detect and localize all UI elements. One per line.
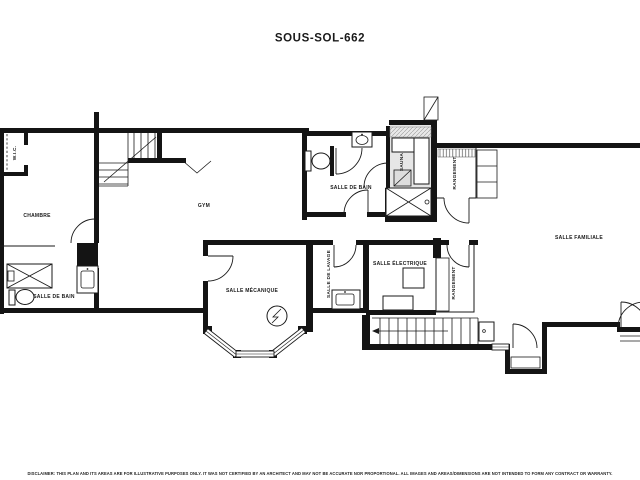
sink-symbol — [352, 132, 372, 147]
floor-plan-page: SOUS-SOL-662 — [0, 0, 640, 480]
disclaimer-text: DISCLAIMER: THIS PLAN AND ITS AREAS ARE … — [28, 471, 613, 476]
room-label-laundry: SALLE DE LAVAGE — [326, 249, 332, 298]
equipment-box — [403, 268, 424, 288]
cabinet-symbol — [479, 322, 494, 341]
equipment-box-2 — [383, 296, 413, 310]
laundry-sink-symbol — [332, 290, 360, 309]
room-label-gym: GYM — [198, 203, 210, 209]
room-label-family-room: SALLE FAMILIALE — [555, 235, 603, 241]
floor-plan-canvas: SOUS-SOL-662 — [0, 0, 640, 480]
room-label-mechanical: SALLE MÉCANIQUE — [226, 286, 279, 294]
room-label-sauna: SAUNA — [399, 153, 405, 172]
room-label-electrical: SALLE ÉLECTRIQUE — [373, 259, 427, 267]
page-title: SOUS-SOL-662 — [275, 33, 365, 45]
room-label-storage-upper: RANGEMENT — [452, 156, 458, 189]
room-label-chambre: CHAMBRE — [23, 213, 51, 219]
toilet-symbol — [305, 151, 330, 171]
shower-symbol-lower — [7, 264, 52, 288]
vanity-symbol — [77, 266, 98, 293]
sauna-heater-symbol — [394, 170, 411, 186]
shower-symbol-upper — [386, 188, 431, 216]
window-symbol-bottom — [492, 344, 509, 350]
room-label-wic: W.I.C. — [12, 146, 18, 161]
toilet-symbol-lower — [9, 290, 34, 306]
room-label-storage-lower: RANGEMENT — [451, 266, 457, 299]
room-label-bathroom-lower: SALLE DE BAIN — [33, 294, 75, 300]
